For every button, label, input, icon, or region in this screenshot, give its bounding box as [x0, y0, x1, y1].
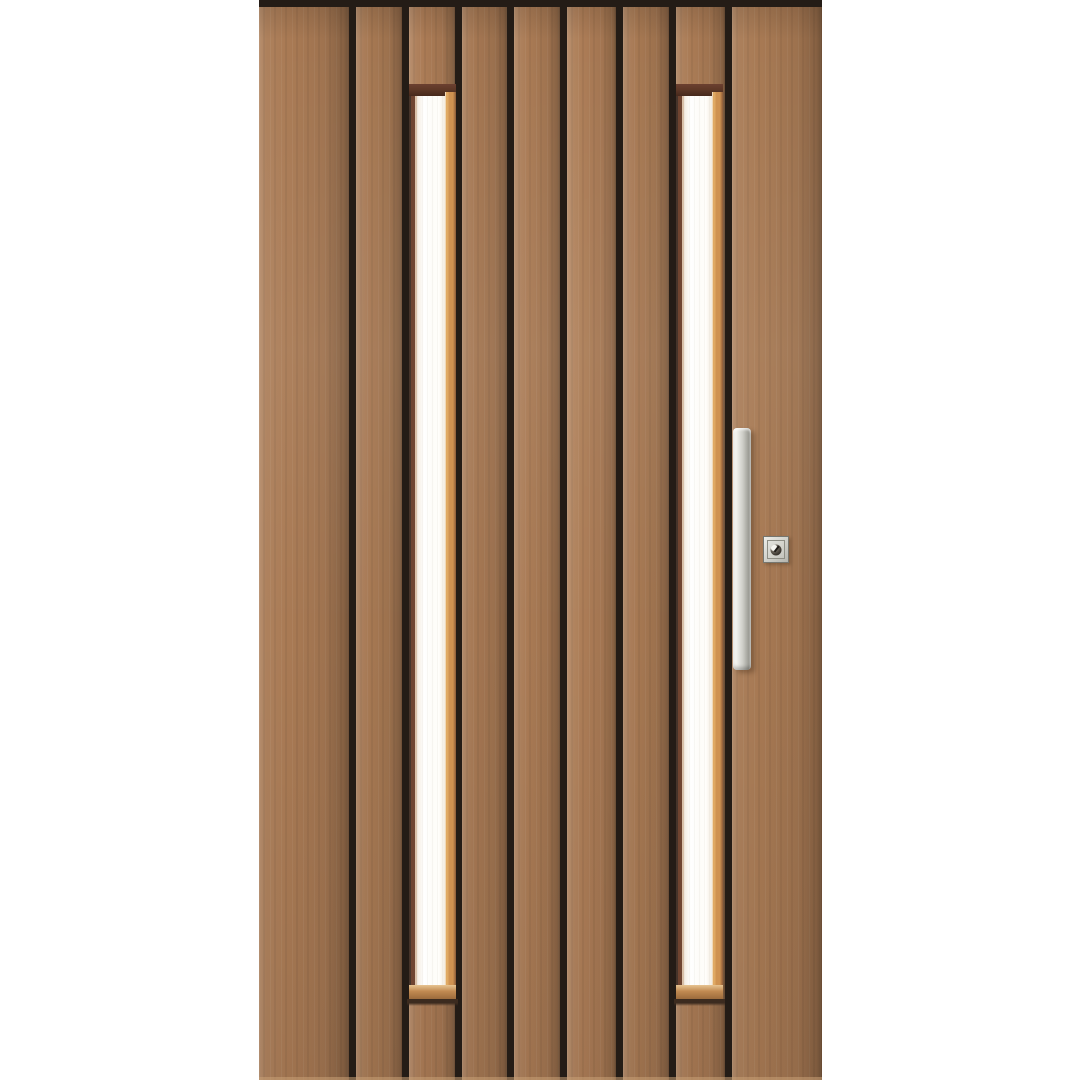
window-sill-shadow [674, 999, 725, 1006]
window-glass [417, 96, 445, 985]
door-plank [356, 7, 402, 1080]
window-sill-shadow [407, 999, 458, 1006]
window-frame-left [676, 96, 684, 985]
door-plank [462, 7, 507, 1080]
door-plank [514, 7, 560, 1080]
window-glass [684, 96, 712, 985]
door-plank [567, 7, 616, 1080]
product-image-canvas [0, 0, 1080, 1080]
keyhole-icon [771, 544, 782, 555]
window-frame-right [445, 92, 456, 985]
window-sill [409, 985, 456, 999]
window-frame-left [409, 96, 417, 985]
door-lock [763, 536, 789, 563]
window-sill [676, 985, 723, 999]
door-plank [623, 7, 669, 1080]
door-plank [259, 7, 349, 1080]
lock-faceplate [767, 540, 785, 559]
window-frame-right [712, 92, 723, 985]
door-handle [733, 428, 751, 670]
entry-door [259, 0, 822, 1080]
